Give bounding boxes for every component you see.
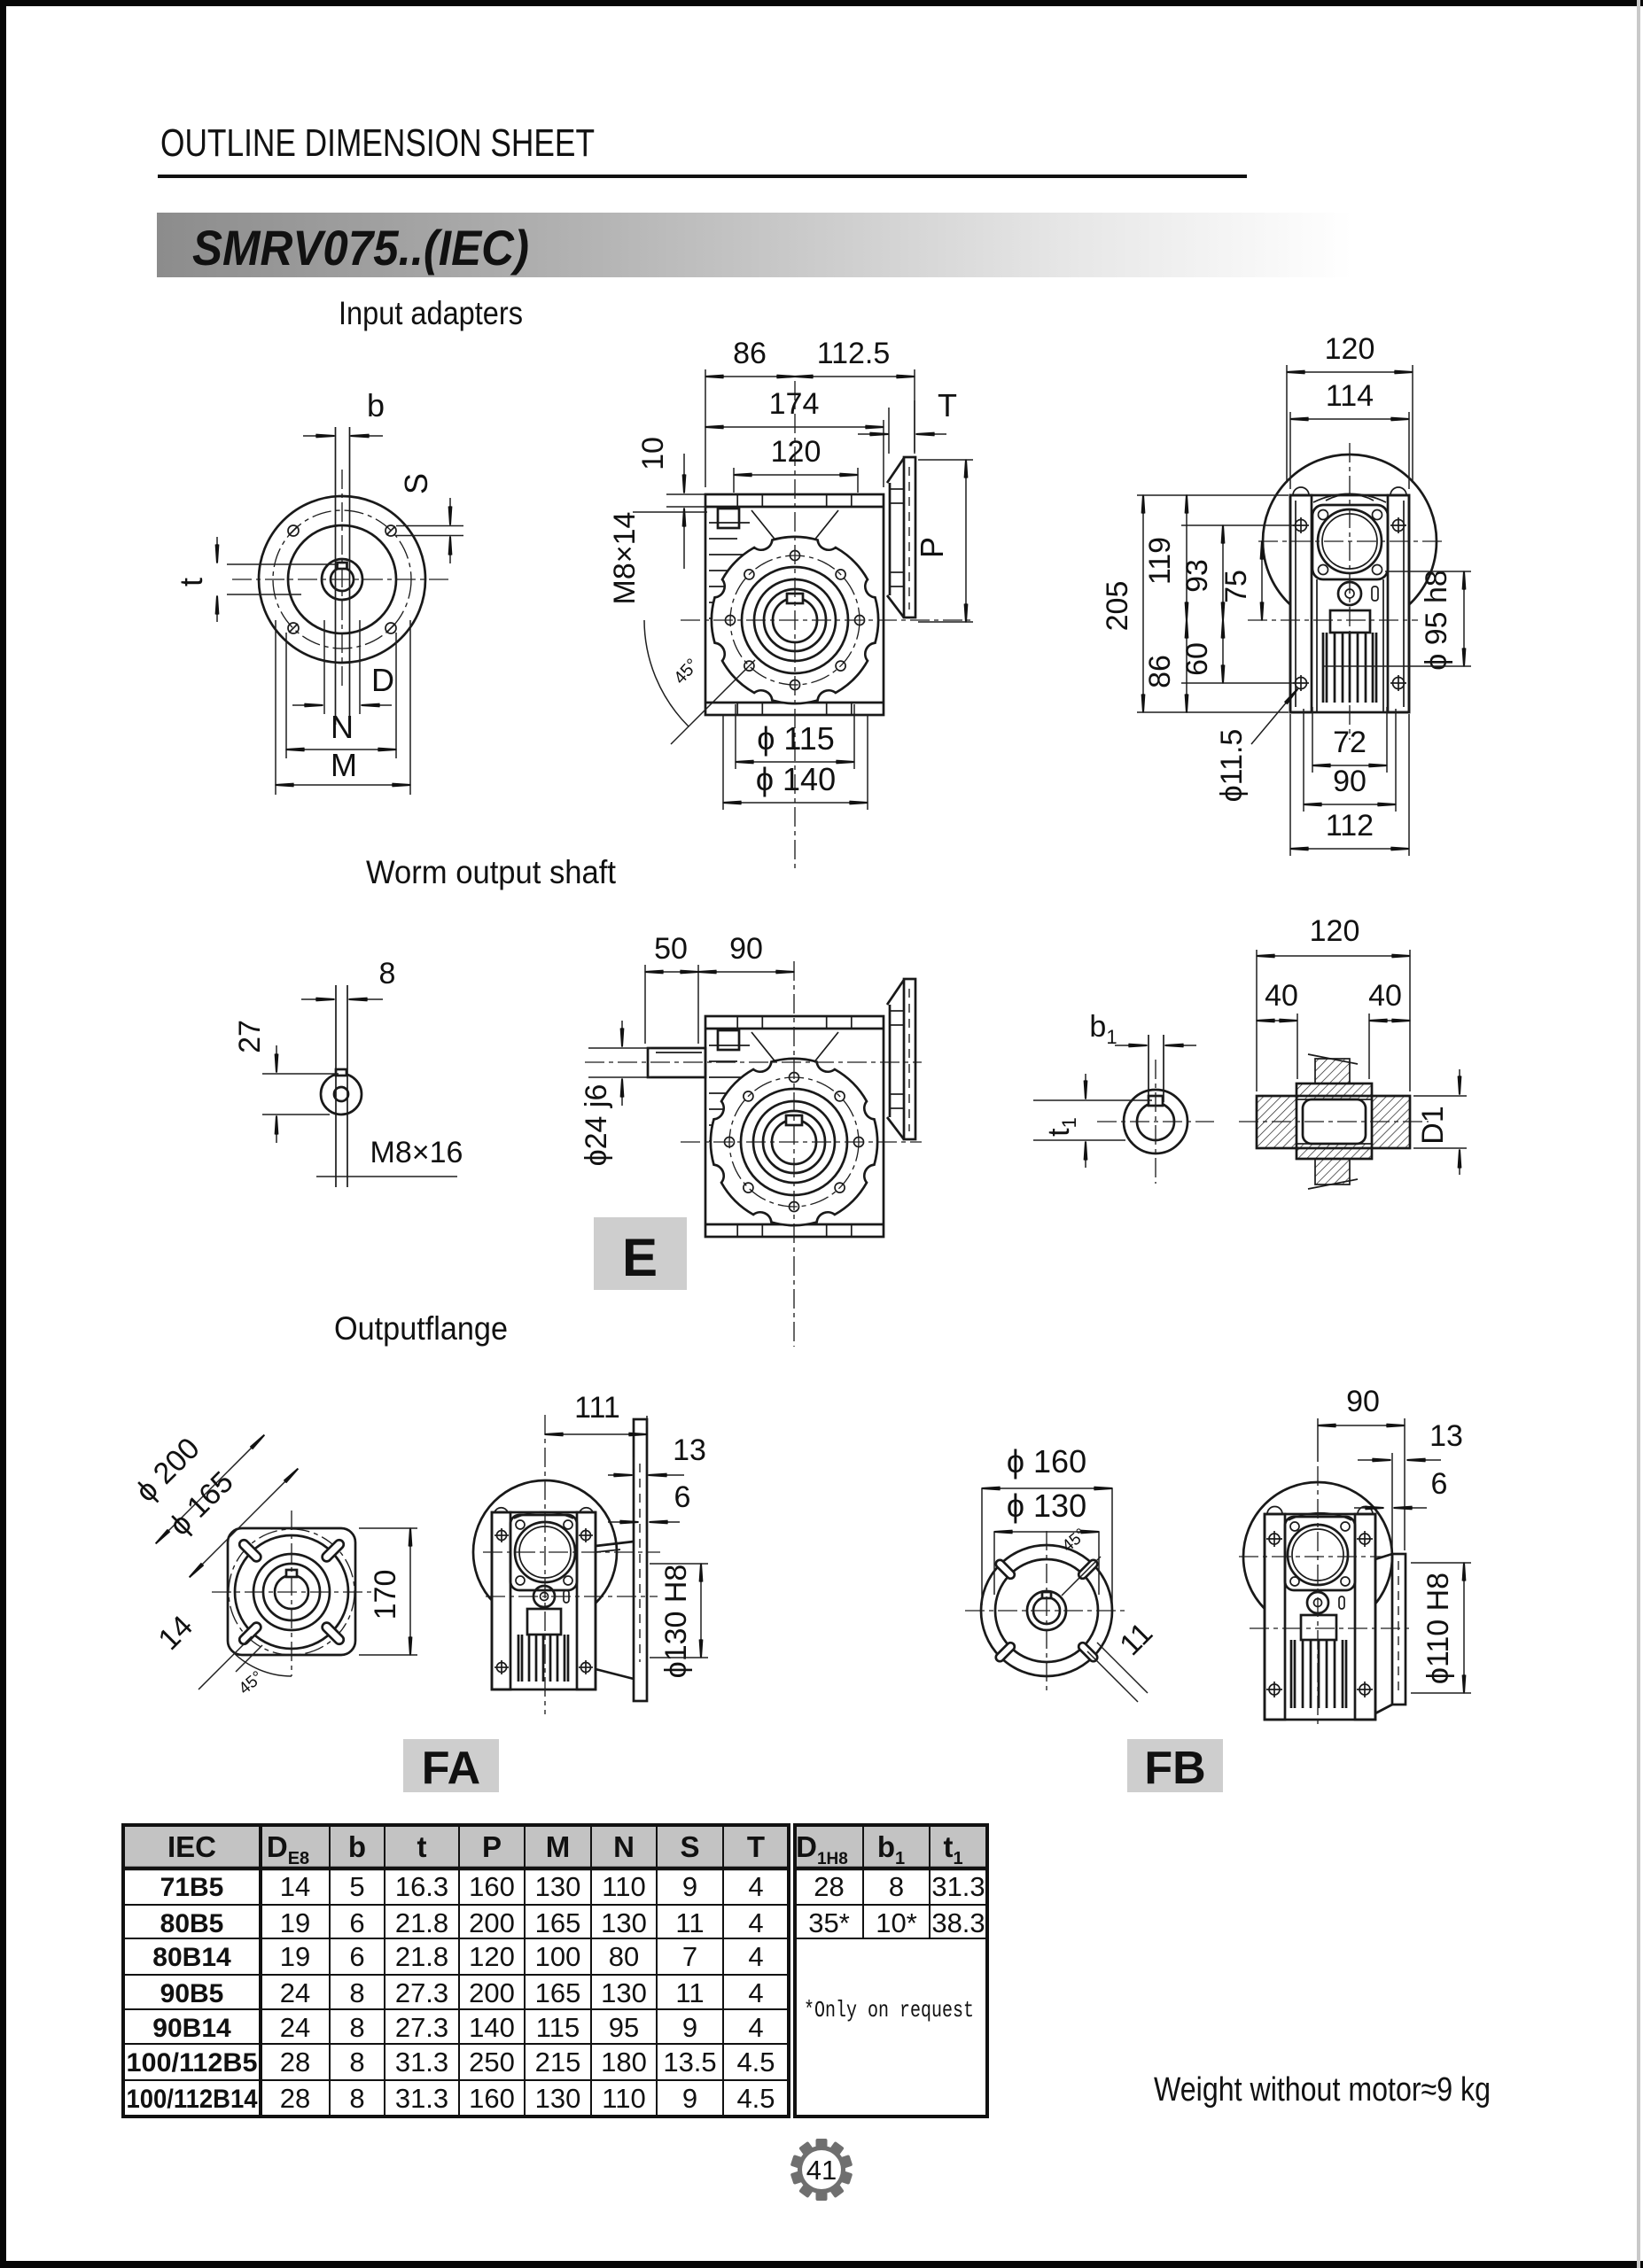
svg-text:S: S xyxy=(398,473,434,494)
svg-text:28: 28 xyxy=(280,2083,310,2114)
svg-text:110: 110 xyxy=(602,1871,645,1902)
svg-text:90B14: 90B14 xyxy=(152,2014,231,2043)
svg-text:165: 165 xyxy=(535,1907,581,1938)
svg-text:E: E xyxy=(622,1228,658,1287)
svg-text:40: 40 xyxy=(1265,979,1298,1013)
svg-text:95: 95 xyxy=(609,2012,639,2043)
svg-text:160: 160 xyxy=(469,2083,515,2114)
svg-text:35*: 35* xyxy=(808,1907,850,1938)
svg-text:80B14: 80B14 xyxy=(152,1943,231,1972)
svg-text:4: 4 xyxy=(748,1871,763,1902)
svg-text:M: M xyxy=(546,1830,571,1863)
svg-text:9: 9 xyxy=(682,1871,697,1902)
svg-text:215: 215 xyxy=(535,2047,581,2078)
svg-text:21.8: 21.8 xyxy=(395,1907,448,1938)
svg-text:31.3: 31.3 xyxy=(395,2083,448,2114)
svg-text:114: 114 xyxy=(1326,379,1374,413)
svg-text:N: N xyxy=(613,1830,635,1863)
svg-text:80: 80 xyxy=(609,1941,639,1972)
svg-text:160: 160 xyxy=(469,1871,515,1902)
svg-text:Worm output shaft: Worm output shaft xyxy=(366,854,617,890)
svg-text:T: T xyxy=(938,387,957,423)
svg-text:Outputflange: Outputflange xyxy=(334,1310,508,1347)
svg-text:SMRV075..(IEC): SMRV075..(IEC) xyxy=(192,220,529,276)
svg-text:115: 115 xyxy=(536,2012,580,2043)
svg-text:86: 86 xyxy=(733,337,767,370)
svg-text:60: 60 xyxy=(1180,642,1214,676)
svg-text:16.3: 16.3 xyxy=(395,1871,448,1902)
svg-text:ϕ 115: ϕ 115 xyxy=(757,720,835,757)
svg-text:OUTLINE DIMENSION SHEET: OUTLINE DIMENSION SHEET xyxy=(160,121,595,165)
svg-text:11: 11 xyxy=(675,1977,704,2008)
svg-text:174: 174 xyxy=(769,387,820,421)
svg-text:8: 8 xyxy=(349,2012,364,2043)
svg-text:72: 72 xyxy=(1333,726,1367,759)
svg-text:90: 90 xyxy=(1333,765,1367,798)
svg-text:6: 6 xyxy=(349,1941,364,1972)
svg-text:111: 111 xyxy=(574,1391,620,1425)
svg-text:100: 100 xyxy=(535,1941,581,1972)
svg-text:t: t xyxy=(173,578,209,586)
svg-text:P: P xyxy=(914,537,950,558)
svg-text:9: 9 xyxy=(682,2083,697,2114)
svg-text:200: 200 xyxy=(469,1907,515,1938)
svg-text:4: 4 xyxy=(748,1977,763,2008)
svg-text:ϕ 95 h8: ϕ 95 h8 xyxy=(1420,570,1453,671)
svg-text:4.5: 4.5 xyxy=(736,2083,775,2114)
svg-text:112.5: 112.5 xyxy=(817,337,891,370)
svg-text:ϕ 130: ϕ 130 xyxy=(1007,1487,1086,1524)
svg-text:27: 27 xyxy=(233,1020,267,1053)
svg-text:4: 4 xyxy=(748,2012,763,2043)
svg-text:14: 14 xyxy=(280,1871,310,1902)
svg-text:8: 8 xyxy=(349,2047,364,2078)
svg-text:6: 6 xyxy=(1431,1467,1448,1501)
svg-text:71B5: 71B5 xyxy=(160,1873,224,1902)
svg-text:b: b xyxy=(367,387,385,423)
svg-text:120: 120 xyxy=(1310,914,1360,948)
svg-text:93: 93 xyxy=(1180,559,1214,593)
svg-text:13: 13 xyxy=(1429,1419,1463,1453)
svg-text:100/112B5: 100/112B5 xyxy=(127,2048,258,2078)
svg-text:19: 19 xyxy=(280,1941,310,1972)
svg-text:ϕ130 H8: ϕ130 H8 xyxy=(659,1565,693,1679)
svg-text:M: M xyxy=(331,747,357,783)
svg-text:4: 4 xyxy=(748,1941,763,1972)
svg-text:119: 119 xyxy=(1143,537,1177,585)
svg-text:D: D xyxy=(371,662,394,698)
svg-text:112: 112 xyxy=(1326,809,1374,843)
svg-text:IEC: IEC xyxy=(167,1830,216,1863)
svg-text:110: 110 xyxy=(602,2083,645,2114)
svg-text:6: 6 xyxy=(349,1907,364,1938)
svg-text:10: 10 xyxy=(636,437,670,470)
svg-text:90B5: 90B5 xyxy=(160,1979,224,2008)
svg-text:86: 86 xyxy=(1143,655,1177,688)
svg-text:11: 11 xyxy=(675,1907,704,1938)
svg-text:t: t xyxy=(417,1830,427,1863)
svg-text:41: 41 xyxy=(806,2155,837,2186)
svg-text:120: 120 xyxy=(771,435,821,469)
svg-text:24: 24 xyxy=(280,2012,310,2043)
svg-text:80B5: 80B5 xyxy=(160,1909,224,1938)
svg-text:31.3: 31.3 xyxy=(931,1871,985,1902)
svg-text:21.8: 21.8 xyxy=(395,1941,448,1972)
svg-text:130: 130 xyxy=(535,1871,581,1902)
svg-text:ϕ24 j6: ϕ24 j6 xyxy=(580,1084,613,1167)
svg-text:120: 120 xyxy=(469,1941,515,1972)
svg-text:4.5: 4.5 xyxy=(736,2047,775,2078)
svg-text:140: 140 xyxy=(469,2012,515,2043)
svg-text:4: 4 xyxy=(748,1907,763,1938)
svg-text:130: 130 xyxy=(535,2083,581,2114)
svg-text:19: 19 xyxy=(280,1907,310,1938)
svg-text:6: 6 xyxy=(674,1480,691,1514)
svg-text:130: 130 xyxy=(601,1907,647,1938)
svg-text:205: 205 xyxy=(1101,581,1134,632)
svg-text:28: 28 xyxy=(280,2047,310,2078)
svg-text:ϕ11.5: ϕ11.5 xyxy=(1215,729,1249,803)
svg-text:100/112B14: 100/112B14 xyxy=(127,2085,258,2114)
svg-text:P: P xyxy=(482,1830,502,1863)
svg-text:S: S xyxy=(680,1830,699,1863)
svg-text:Weight without motor≈9 kg: Weight without motor≈9 kg xyxy=(1154,2071,1491,2109)
svg-text:13.5: 13.5 xyxy=(663,2047,716,2078)
svg-text:170: 170 xyxy=(369,1570,402,1620)
svg-text:250: 250 xyxy=(469,2047,515,2078)
svg-text:M8×14: M8×14 xyxy=(608,512,642,605)
svg-text:Input adapters: Input adapters xyxy=(339,295,523,331)
svg-text:28: 28 xyxy=(814,1871,844,1902)
svg-text:M8×16: M8×16 xyxy=(370,1136,463,1169)
svg-text:200: 200 xyxy=(469,1977,515,2008)
svg-text:ϕ 140: ϕ 140 xyxy=(756,761,836,797)
svg-text:75: 75 xyxy=(1219,570,1253,603)
svg-text:40: 40 xyxy=(1368,979,1402,1013)
svg-text:*Only on request: *Only on request xyxy=(804,1997,974,2023)
svg-text:13: 13 xyxy=(673,1433,706,1467)
svg-text:10*: 10* xyxy=(876,1907,917,1938)
svg-text:ϕ 160: ϕ 160 xyxy=(1007,1443,1086,1480)
svg-text:31.3: 31.3 xyxy=(395,2047,448,2078)
svg-text:120: 120 xyxy=(1325,332,1375,366)
svg-text:130: 130 xyxy=(601,1977,647,2008)
svg-text:165: 165 xyxy=(535,1977,581,2008)
svg-text:FA: FA xyxy=(422,1743,480,1794)
svg-text:24: 24 xyxy=(280,1977,310,2008)
svg-text:9: 9 xyxy=(682,2012,697,2043)
svg-text:38.3: 38.3 xyxy=(931,1907,985,1938)
svg-text:90: 90 xyxy=(729,932,763,966)
svg-text:8: 8 xyxy=(379,957,396,990)
svg-text:90: 90 xyxy=(1346,1385,1380,1418)
svg-text:b: b xyxy=(348,1830,366,1863)
svg-text:27.3: 27.3 xyxy=(395,2012,448,2043)
svg-text:D1: D1 xyxy=(1416,1106,1450,1144)
svg-text:FB: FB xyxy=(1144,1743,1205,1794)
svg-text:ϕ110 H8: ϕ110 H8 xyxy=(1421,1573,1455,1684)
svg-text:8: 8 xyxy=(349,1977,364,2008)
svg-text:5: 5 xyxy=(349,1871,364,1902)
svg-text:T: T xyxy=(747,1830,765,1863)
svg-text:50: 50 xyxy=(654,932,688,966)
svg-text:27.3: 27.3 xyxy=(395,1977,448,2008)
svg-text:7: 7 xyxy=(682,1941,697,1972)
svg-text:180: 180 xyxy=(601,2047,647,2078)
svg-text:8: 8 xyxy=(349,2083,364,2114)
svg-text:8: 8 xyxy=(889,1871,904,1902)
svg-text:N: N xyxy=(331,709,354,745)
